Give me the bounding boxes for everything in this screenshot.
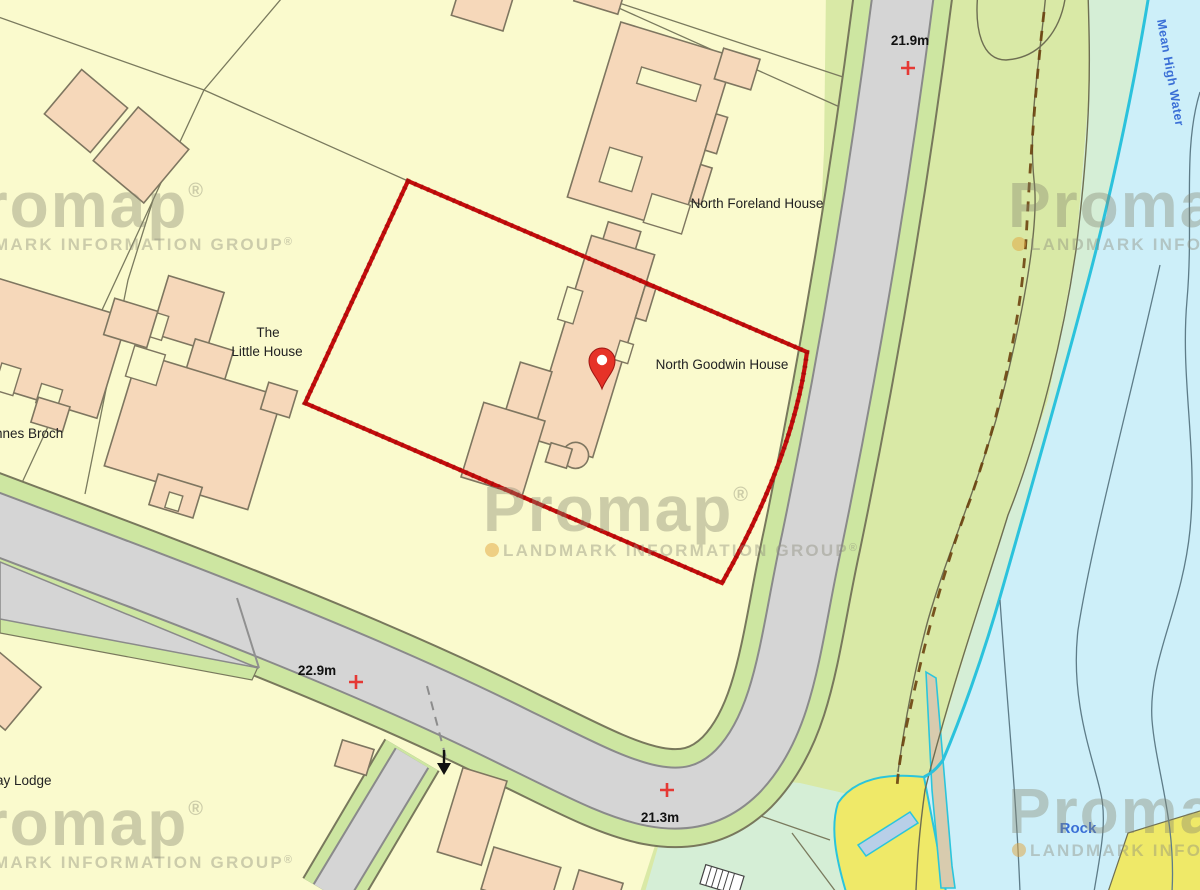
label-north-goodwin-house: North Goodwin House	[656, 357, 789, 372]
label-the: The	[256, 325, 279, 340]
svg-text:Promap®: Promap®	[483, 473, 750, 545]
svg-text:LANDMARK INFORMATION GROUP®: LANDMARK INFORMATION GROUP®	[1030, 841, 1200, 860]
spot-height-south: 21.3m	[641, 810, 679, 825]
watermark-bottom-right: Promap® LANDMARK INFORMATION GROUP®	[1008, 775, 1200, 860]
map-canvas[interactable]: North Foreland House North Goodwin House…	[0, 0, 1200, 890]
label-ay-lodge: ay Lodge	[0, 773, 52, 788]
svg-text:LANDMARK INFORMATION GROUP®: LANDMARK INFORMATION GROUP®	[1030, 235, 1200, 254]
label-little-house: Little House	[231, 344, 302, 359]
svg-text:Promap®: Promap®	[0, 169, 205, 241]
label-north-foreland-house: North Foreland House	[691, 196, 824, 211]
watermark-dot-icon	[1012, 843, 1026, 857]
svg-text:Promap®: Promap®	[1008, 169, 1200, 241]
watermark-dot-icon	[485, 543, 499, 557]
label-innes-broch: innes Broch	[0, 426, 63, 441]
watermark-top-right: Promap® LANDMARK INFORMATION GROUP®	[1008, 169, 1200, 254]
svg-text:LANDMARK INFORMATION GROUP®: LANDMARK INFORMATION GROUP®	[0, 235, 294, 254]
svg-text:LANDMARK INFORMATION GROUP®: LANDMARK INFORMATION GROUP®	[0, 853, 294, 872]
watermark-dot-icon	[1012, 237, 1026, 251]
spot-height-west: 22.9m	[298, 663, 336, 678]
svg-text:LANDMARK INFORMATION GROUP®: LANDMARK INFORMATION GROUP®	[503, 541, 859, 560]
spot-height-north: 21.9m	[891, 33, 929, 48]
map-svg: North Foreland House North Goodwin House…	[0, 0, 1200, 890]
svg-text:Promap®: Promap®	[1008, 775, 1200, 847]
svg-text:Promap®: Promap®	[0, 787, 205, 859]
